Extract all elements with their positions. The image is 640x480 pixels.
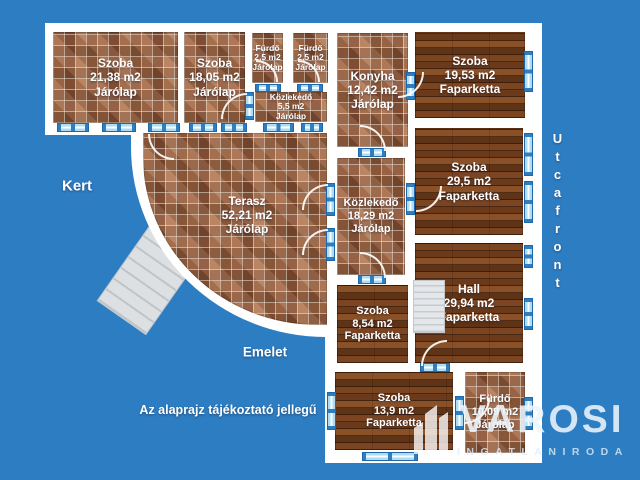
level-label: Emelet (243, 345, 287, 360)
room-szoba-295: Szoba 29,5 m2 Faparketta (415, 128, 523, 235)
agency-buildings-icon (414, 400, 448, 459)
window (57, 123, 89, 132)
disclaimer-text: Az alaprajz tájékoztató jellegű (139, 403, 316, 417)
door (255, 84, 281, 92)
room-label: Szoba 29,5 m2 Faparketta (415, 128, 523, 235)
room-kozlekedo-55: Közlekedő 5,5 m2 Járólap (255, 92, 327, 122)
room-szoba-1953: Szoba 19,53 m2 Faparketta (415, 32, 525, 118)
window (189, 123, 217, 132)
window (524, 245, 533, 268)
door (297, 84, 323, 92)
room-terasz: Terasz 52,21 m2 Járólap (143, 133, 327, 325)
window (221, 123, 247, 132)
street-front-label: Utcafront (550, 131, 565, 293)
room-szoba-2138: Szoba 21,38 m2 Járólap (53, 32, 178, 123)
window (524, 51, 533, 92)
window (362, 452, 418, 461)
room-label: Közlekedő 5,5 m2 Járólap (255, 92, 327, 122)
floor-plan: Szoba 21,38 m2 Járólap Szoba 18,05 m2 Já… (0, 0, 640, 480)
hall-stairs (413, 280, 445, 333)
window (524, 298, 533, 330)
door (148, 123, 180, 132)
garden-label: Kert (62, 178, 92, 195)
room-label: Terasz 52,21 m2 Járólap (143, 133, 327, 325)
window (263, 123, 294, 132)
window (327, 392, 336, 430)
room-label: Szoba 8,54 m2 Faparketta (337, 285, 408, 363)
window (301, 123, 323, 132)
agency-logo-subtitle: INGATLANIRODA (457, 446, 629, 458)
window (102, 123, 136, 132)
agency-logo-text: VAROSI (460, 400, 625, 441)
window (524, 181, 533, 223)
room-label: Szoba 19,53 m2 Faparketta (415, 32, 525, 118)
door (406, 183, 415, 215)
room-szoba-854: Szoba 8,54 m2 Faparketta (337, 285, 408, 363)
room-label: Szoba 21,38 m2 Járólap (53, 32, 178, 123)
window (524, 133, 533, 176)
